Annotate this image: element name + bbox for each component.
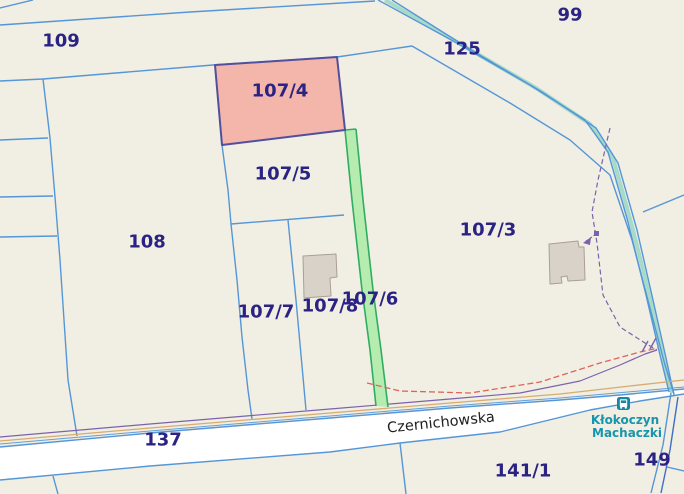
parcel-label-125: 125 — [443, 39, 481, 60]
parcel-label-108: 108 — [128, 232, 166, 253]
boundary-1411-west — [400, 443, 406, 494]
boundary-108-east — [222, 145, 252, 419]
road-125-path-teal — [385, 0, 672, 393]
green-strip-north-cap — [345, 129, 356, 130]
purple-node-marker — [594, 231, 599, 236]
corner-line-topleft — [0, 0, 33, 8]
parcel-label-109: 109 — [42, 31, 80, 52]
parcel-label-107-3: 107/3 — [460, 220, 517, 241]
parcel-label-107-7: 107/7 — [238, 302, 295, 323]
locality-label-line2: Machaczki — [592, 426, 662, 440]
parcel-label-149: 149 — [633, 450, 671, 471]
road-czernichowska-surface — [0, 389, 684, 480]
bus-stop-icon-window — [621, 400, 626, 403]
boundary-149-west — [651, 393, 671, 493]
utility-line-purple-vertical — [592, 128, 657, 350]
parcel-label-107-6: 107/6 — [342, 289, 399, 310]
left-strip-divider-2 — [0, 196, 53, 197]
boundary-right-edge — [643, 195, 684, 212]
boundary-left-vertical — [43, 79, 77, 436]
left-strip-divider-1 — [0, 138, 48, 140]
parcel-label-99: 99 — [557, 5, 582, 26]
parcel-label-107-4: 107/4 — [252, 81, 309, 102]
parcel-label-141-1: 141/1 — [495, 461, 552, 482]
boundary-109-north — [0, 1, 375, 25]
bus-stop-icon-wheel-right — [625, 407, 627, 409]
cadastral-map[interactable]: 10999125107/4107/5108107/3107/7107/8107/… — [0, 0, 684, 494]
parcel-1076-green-strip — [345, 129, 388, 407]
left-strip-divider-3 — [0, 236, 57, 237]
building-1073 — [549, 241, 585, 284]
parcel-label-137: 137 — [144, 430, 182, 451]
bus-stop-icon-wheel-left — [620, 407, 622, 409]
below-road-divider-west — [53, 476, 58, 494]
locality-label-line1: Kłokoczyn — [591, 413, 659, 427]
bus-stop-icon-body — [620, 399, 627, 407]
boundary-1075-south — [231, 215, 344, 224]
map-viewport[interactable]: 10999125107/4107/5108107/3107/7107/8107/… — [0, 0, 684, 494]
utility-line-red — [367, 348, 658, 393]
parcel-label-107-5: 107/5 — [255, 164, 312, 185]
building-1078 — [303, 254, 337, 298]
purple-leader-arrowhead — [583, 237, 591, 245]
